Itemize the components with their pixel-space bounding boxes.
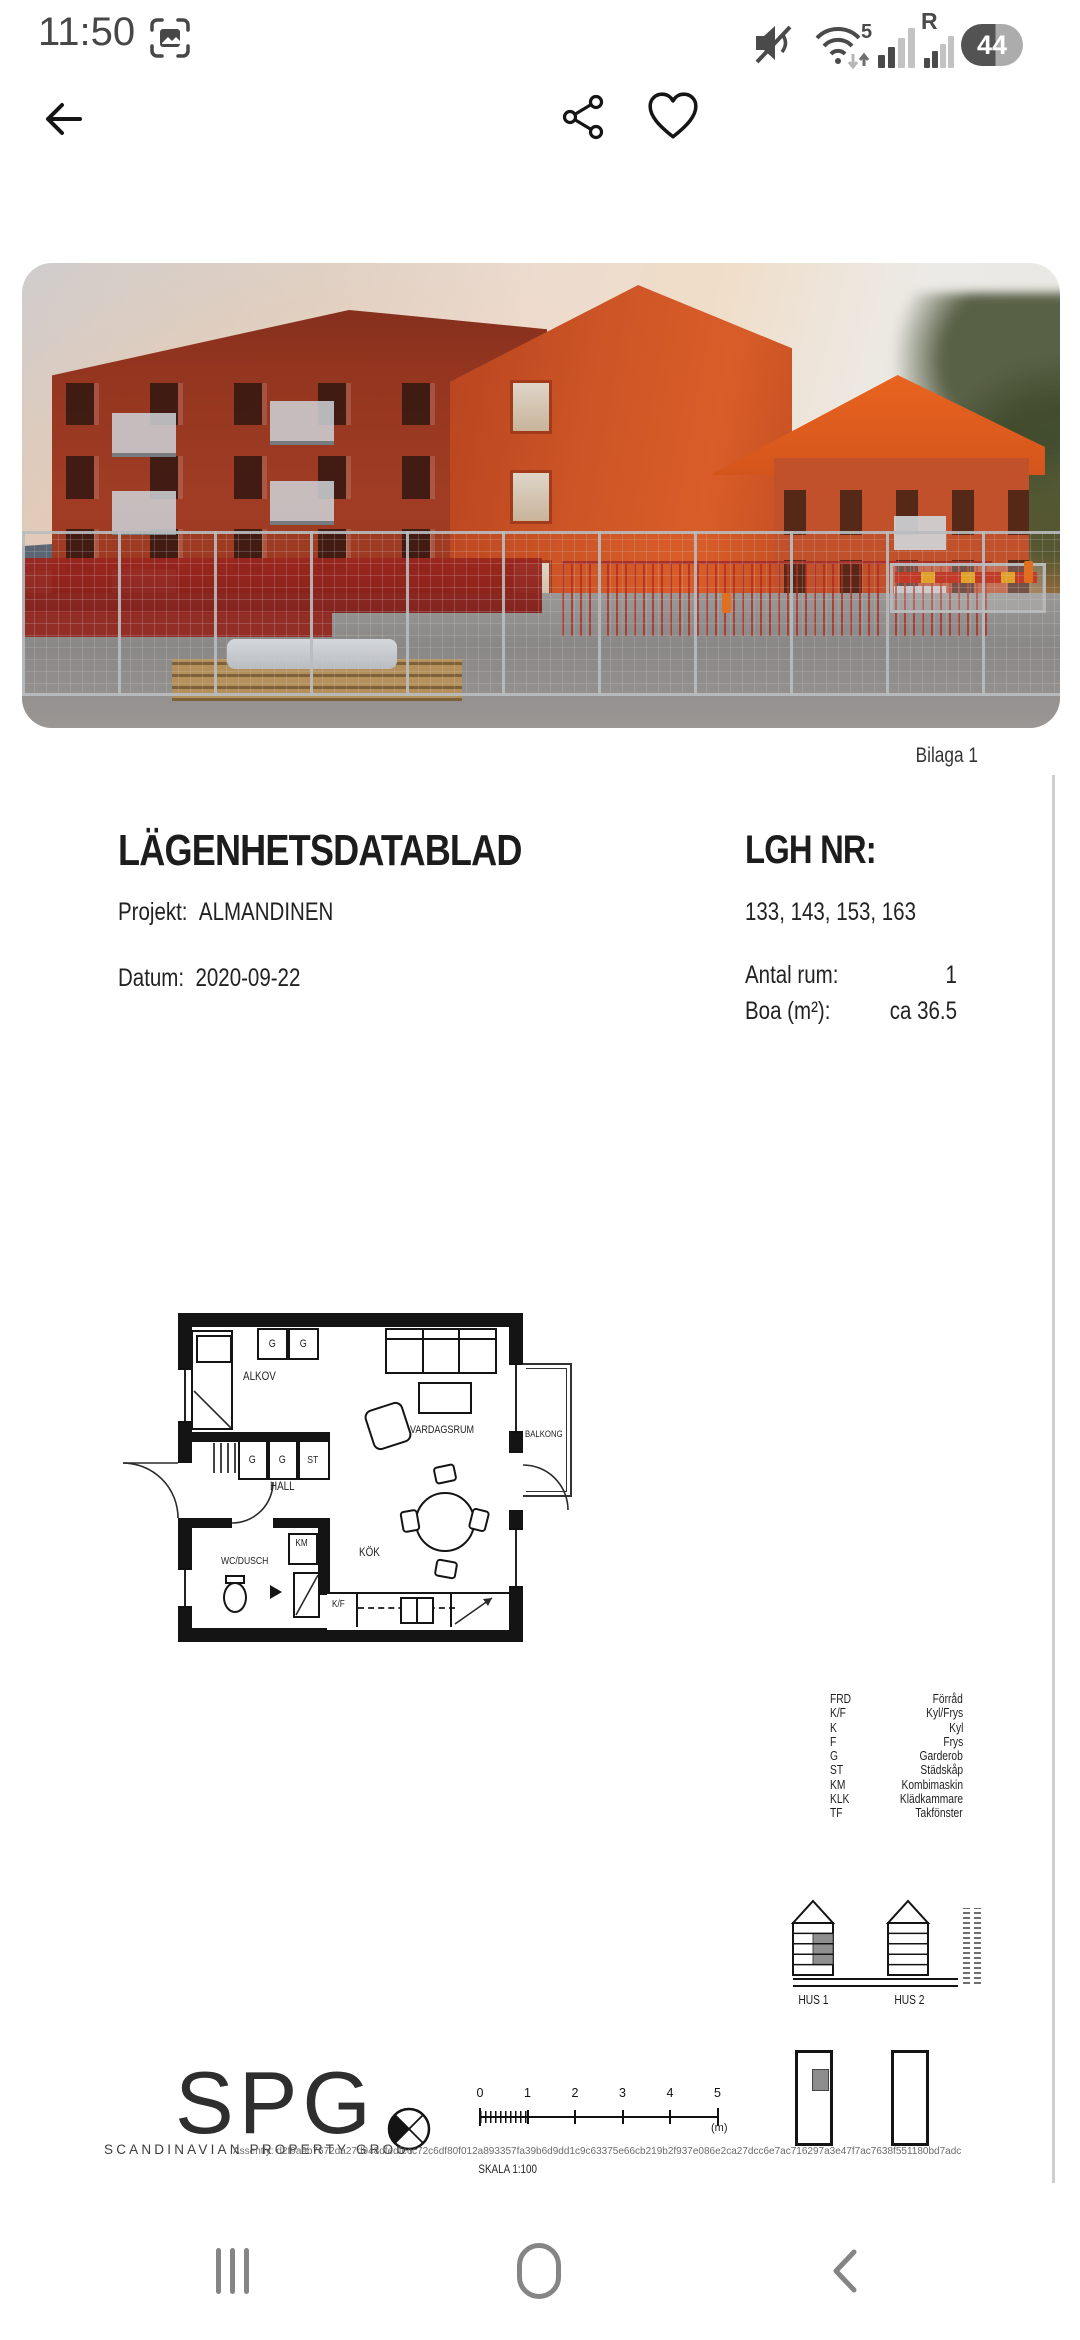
room-label-hall: HALL — [270, 1479, 300, 1493]
photo-balcony — [270, 481, 334, 525]
fixture-label-kf: K/F — [332, 1599, 348, 1610]
scale-hatch — [480, 2111, 527, 2123]
legend-row: FFrys — [830, 1735, 963, 1749]
legend-row: K/FKyl/Frys — [830, 1706, 963, 1720]
mute-icon — [752, 20, 800, 66]
battery-indicator: 44 — [961, 24, 1023, 66]
screen-capture-icon — [148, 16, 192, 60]
legend-row: KKyl — [830, 1721, 963, 1735]
spg-logo: SPG — [175, 2052, 376, 2154]
legend-row: STStädskåp — [830, 1763, 963, 1777]
floor-annotation — [963, 1908, 970, 1984]
legend-row: TFTakfönster — [830, 1806, 963, 1820]
hus2-label: HUS 2 — [884, 1993, 934, 2007]
photo-balcony — [112, 413, 176, 457]
legend-row: GGarderob — [830, 1749, 963, 1763]
floor-plan-detail-lines — [118, 1313, 588, 1658]
photo-cone — [722, 593, 731, 613]
status-time: 11:50 — [38, 10, 135, 55]
room-label-vardagsrum: VARDAGSRUM — [410, 1424, 488, 1436]
attachment-label: Bilaga 1 — [858, 744, 978, 768]
legend-row: KLKKlädkammare — [830, 1792, 963, 1806]
skala-label: SKALA 1:100 — [463, 2162, 553, 2176]
photo-metal-fence — [22, 531, 1060, 696]
room-label-kok: KÖK — [359, 1545, 384, 1559]
datum-row: Datum: 2020-09-22 — [118, 964, 340, 993]
antal-rum-row: Antal rum: 1 — [745, 961, 957, 990]
legend-row: FRDFörråd — [830, 1692, 963, 1706]
floor-plan: G G G G ST KM — [118, 1313, 588, 1658]
boa-row: Boa (m²): ca 36.5 — [745, 997, 957, 1026]
site-plan-hus2 — [891, 2050, 929, 2146]
signal-strength-icon — [878, 24, 918, 68]
scrollbar[interactable] — [1052, 775, 1055, 2183]
legend-row: KMKombimaskin — [830, 1778, 963, 1792]
lgh-nr-value: 133, 143, 153, 163 — [745, 898, 954, 927]
share-button[interactable] — [560, 93, 608, 141]
svg-text:5: 5 — [861, 21, 872, 43]
wifi-5g-icon: 5 — [812, 18, 874, 72]
scale-bar: 0 1 2 3 4 5 (m) — [477, 2086, 729, 2138]
floor-annotation — [974, 1908, 981, 1984]
roaming-signal-icon — [924, 34, 958, 68]
hus1-label: HUS 1 — [788, 1993, 838, 2007]
recents-button[interactable] — [216, 2248, 250, 2294]
abbreviation-legend: FRDFörråd K/FKyl/Frys KKyl FFrys GGarder… — [830, 1692, 963, 1821]
scale-unit: (m) — [711, 2122, 728, 2134]
back-nav-button[interactable] — [828, 2248, 860, 2294]
projekt-row: Projekt: ALMANDINEN — [118, 898, 381, 927]
listing-photo[interactable] — [22, 263, 1060, 728]
battery-percent: 44 — [977, 30, 1007, 61]
favorite-button[interactable] — [646, 91, 700, 141]
photo-balcony — [270, 401, 334, 445]
lgh-nr-label: LGH NR: — [745, 828, 905, 873]
photo-balcony — [112, 491, 176, 535]
photo-cone — [1024, 561, 1033, 583]
back-button[interactable] — [40, 96, 86, 142]
page-title: LÄGENHETSDATABLAD — [118, 826, 610, 876]
site-plan-hus1 — [795, 2050, 833, 2146]
apartment-location-marker — [812, 2069, 829, 2091]
room-label-balkong: BALKONG — [525, 1429, 571, 1440]
roaming-indicator: R — [921, 8, 938, 35]
room-label-alkov: ALKOV — [243, 1369, 283, 1383]
room-label-wc: WC/DUSCH — [221, 1555, 279, 1567]
phone-screen: { "status_bar": { "time": "11:50", "netw… — [0, 0, 1080, 2340]
home-button[interactable] — [517, 2243, 561, 2299]
assently-signature-line: Assently: d2f9a9b7672da27d948dfedfecc72c… — [233, 2146, 1073, 2157]
